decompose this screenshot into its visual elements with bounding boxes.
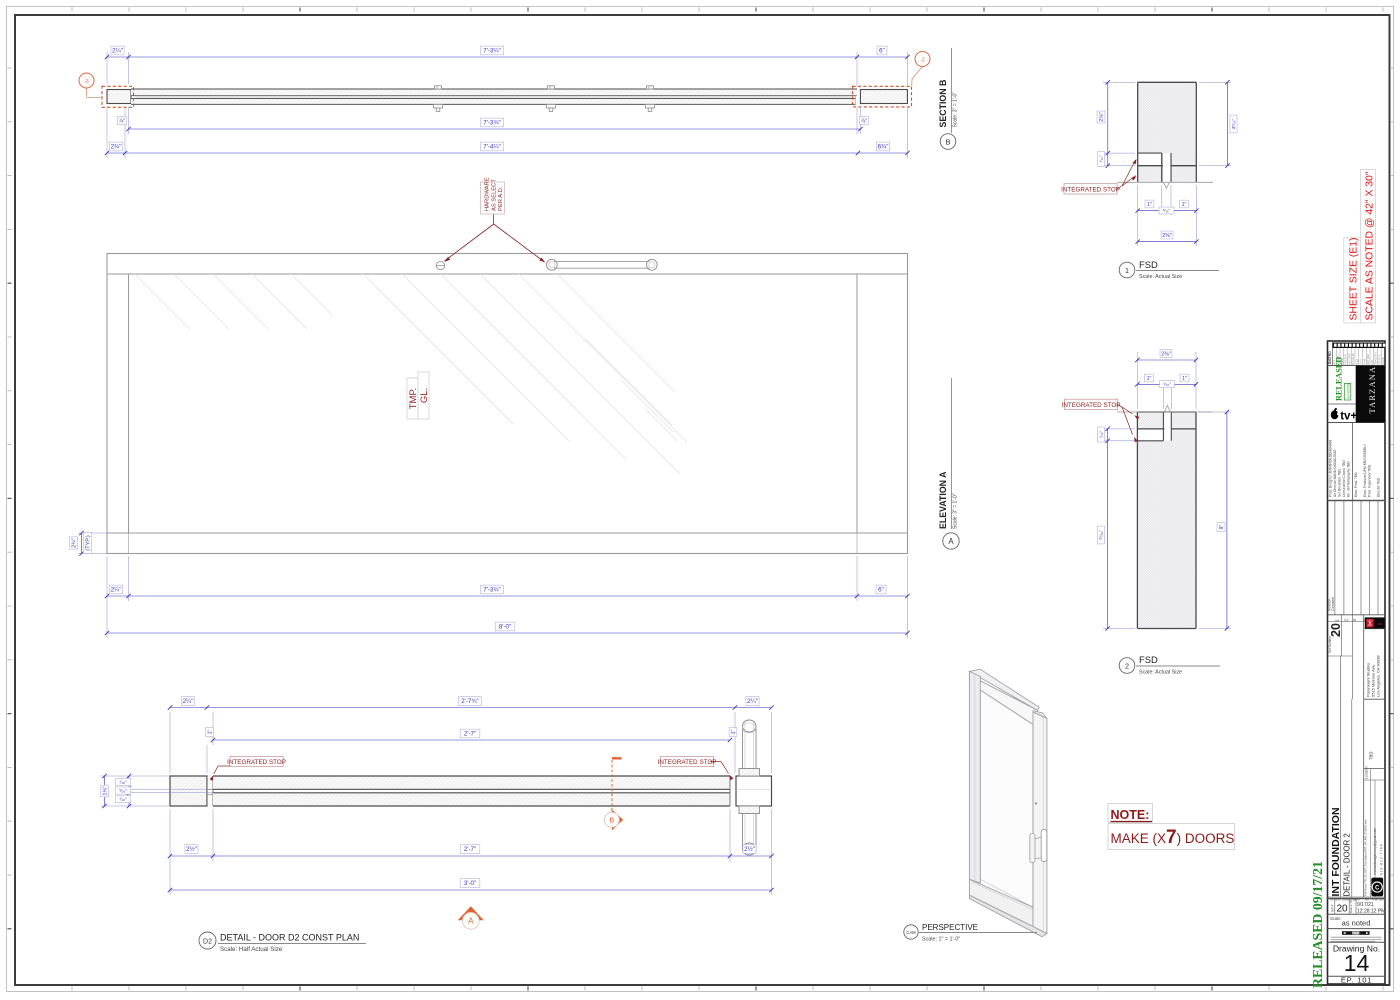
svg-text:1": 1"	[731, 729, 737, 734]
svg-text:3'-0": 3'-0"	[464, 880, 476, 887]
svg-text:⅞": ⅞"	[861, 118, 867, 124]
svg-text:SCALE AS NOTED @ 42" X 30": SCALE AS NOTED @ 42" X 30"	[1364, 171, 1375, 320]
svg-text:2'-7": 2'-7"	[464, 846, 476, 853]
svg-text:as noted: as noted	[1342, 919, 1371, 928]
svg-text:Set Decorator TBD: Set Decorator TBD	[1337, 469, 1341, 497]
svg-text:D2: D2	[203, 938, 212, 945]
svg-text:Prod. Supervisor TBD: Prod. Supervisor TBD	[1367, 464, 1371, 497]
svg-text:-3: -3	[84, 79, 89, 85]
svg-text:PERSPECTIVE: PERSPECTIVE	[922, 923, 978, 932]
svg-text:Set #: Set #	[1331, 904, 1335, 912]
svg-text:2½": 2½"	[186, 846, 197, 853]
svg-text:A: A	[948, 537, 954, 546]
svg-text:2'-7¾": 2'-7¾"	[461, 698, 478, 705]
svg-text:3⁵⁄₁₆": 3⁵⁄₁₆"	[1231, 119, 1236, 130]
svg-text:RIG GRIP: RIG GRIP	[1347, 353, 1351, 365]
svg-text:A: A	[468, 917, 474, 926]
svg-text:Date & Time: Date & Time	[1349, 897, 1353, 913]
svg-text:INT FOUNDATION: INT FOUNDATION	[1330, 807, 1342, 896]
svg-text:EP. 101: EP. 101	[1341, 975, 1372, 984]
svg-text:PROD: PROD	[1381, 357, 1385, 365]
svg-text:⅞": ⅞"	[119, 118, 125, 124]
svg-text:7'-4¼": 7'-4¼"	[483, 144, 500, 151]
svg-text:LOC: LOC	[1370, 359, 1374, 364]
svg-text:INTEGRATED STOP: INTEGRATED STOP	[1061, 187, 1120, 194]
svg-text:TMP.: TMP.	[408, 388, 419, 409]
svg-text:CAM: CAM	[1362, 359, 1366, 365]
svg-text:2⅝": 2⅝"	[1099, 112, 1105, 121]
svg-text:Construction Coord. TBD: Construction Coord. TBD	[1342, 460, 1346, 497]
svg-text:-2: -2	[920, 58, 925, 64]
svg-text:6": 6"	[878, 587, 884, 594]
svg-text:Scale: Half Actual Size: Scale: Half Actual Size	[220, 946, 283, 953]
svg-text:V-FX: V-FX	[1359, 359, 1363, 365]
svg-text:⁵⁄₁₆": ⁵⁄₁₆"	[1163, 382, 1171, 387]
svg-text:⁵⁄₁₆": ⁵⁄₁₆"	[119, 788, 127, 793]
svg-text:C: C	[1375, 885, 1380, 891]
svg-text:2¼": 2¼"	[111, 587, 122, 594]
svg-text:INTEGRATED STOP: INTEGRATED STOP	[227, 759, 286, 766]
svg-text:6¾": 6¾"	[878, 144, 889, 151]
svg-text:1": 1"	[207, 729, 213, 734]
svg-text:7'-3¼": 7'-3¼"	[483, 48, 500, 55]
svg-text:RELEASED: RELEASED	[1335, 357, 1344, 401]
svg-text:rev 9/17/21: rev 9/17/21	[1346, 383, 1350, 399]
svg-text:Exec. Prod. TBD: Exec. Prod. TBD	[1354, 472, 1358, 497]
svg-text:2¼": 2¼"	[183, 698, 194, 705]
svg-text:2⅜": 2⅜"	[1162, 233, 1171, 239]
svg-text:2¼": 2¼"	[112, 48, 123, 55]
svg-text:Scale: Actual Size: Scale: Actual Size	[1139, 670, 1182, 676]
svg-text:File Name TA_20_SET_Foundati: File Name TA_20_SET_Foundation/INT_V4_MB…	[1364, 819, 1368, 896]
svg-text:Exec. Producer/UPM KRIS EBER: Exec. Producer/UPM KRIS EBERLY	[1363, 443, 1367, 497]
svg-text:FSD: FSD	[1139, 654, 1158, 665]
svg-text:SECTION B: SECTION B	[938, 80, 948, 128]
svg-text:(TYP.): (TYP.)	[86, 535, 92, 551]
svg-text:HARDWARE: HARDWARE	[485, 177, 491, 211]
svg-text:Scale: 3" = 1'-0": Scale: 3" = 1'-0"	[953, 92, 959, 128]
svg-text:⁷⁄₁₆": ⁷⁄₁₆"	[1099, 430, 1104, 438]
svg-text:7'-3¾": 7'-3¾"	[483, 587, 500, 594]
svg-text:1": 1"	[1147, 376, 1152, 382]
svg-text:9": 9"	[1219, 524, 1225, 529]
svg-text:6": 6"	[879, 48, 885, 55]
svg-text:michaelbudgehenry@gmail.com: michaelbudgehenry@gmail.com	[1373, 828, 1377, 875]
svg-text:Prod. Designer JENNIFER DEHG: Prod. Designer JENNIFER DEHGHANI	[1328, 440, 1332, 497]
svg-text:14: 14	[1344, 950, 1370, 976]
svg-text:tv+: tv+	[1340, 410, 1357, 422]
svg-text:AS SELECT: AS SELECT	[491, 179, 497, 211]
svg-text:1": 1"	[1182, 376, 1187, 382]
svg-text:Scale: 1" = 1'-0": Scale: 1" = 1'-0"	[922, 937, 960, 943]
svg-text:STUNTS: STUNTS	[1377, 354, 1381, 365]
svg-text:Dir. of Photography TBD: Dir. of Photography TBD	[1346, 461, 1350, 497]
svg-text:2½": 2½"	[744, 846, 755, 853]
svg-text:1": 1"	[1147, 202, 1152, 208]
svg-text:S-FX: S-FX	[1355, 359, 1359, 365]
svg-text:B: B	[945, 137, 950, 146]
svg-text:Los Angeles, CA 90038: Los Angeles, CA 90038	[1375, 655, 1380, 697]
svg-text:2¾": 2¾"	[72, 538, 78, 548]
svg-text:1: 1	[1125, 266, 1129, 275]
svg-text:20: 20	[1336, 904, 1348, 915]
svg-text:⁵⁄₁₆": ⁵⁄₁₆"	[1163, 208, 1171, 213]
svg-text:CAM: CAM	[906, 930, 916, 935]
svg-text:2¾": 2¾"	[111, 144, 122, 151]
svg-text:1" ACTUAL: 1" ACTUAL	[1350, 932, 1362, 935]
svg-text:SHEET SIZE (E1): SHEET SIZE (E1)	[1349, 238, 1360, 321]
svg-text:2'-7": 2'-7"	[464, 731, 476, 738]
svg-text:8'-0": 8'-0"	[499, 624, 511, 631]
svg-text:TBD: TBD	[1369, 752, 1374, 760]
svg-text:⁷⁄₁₆": ⁷⁄₁₆"	[119, 797, 127, 802]
svg-text:PER A.D.: PER A.D.	[498, 186, 504, 211]
svg-text:1": 1"	[1182, 202, 1187, 208]
svg-text:Comment: Comment	[1331, 597, 1335, 611]
svg-text:TARZANA: TARZANA	[1368, 366, 1377, 414]
svg-text:TRANSPO: TRANSPO	[1374, 352, 1378, 365]
svg-text:8 1 8 - 6 1 2 - 7 7 6 4: 8 1 8 - 6 1 2 - 7 7 6 4	[1380, 844, 1384, 875]
svg-text:1⅛": 1⅛"	[102, 786, 108, 795]
svg-text:Location: Location	[1364, 766, 1368, 779]
svg-text:2: 2	[1125, 661, 1129, 670]
svg-text:RELEASED 09/17/21: RELEASED 09/17/21	[1310, 861, 1325, 988]
svg-text:AB9: AB9	[1377, 622, 1382, 626]
svg-text:9/17/21: 9/17/21	[1357, 902, 1374, 908]
svg-text:MAKE (X7) DOORS: MAKE (X7) DOORS	[1111, 827, 1235, 848]
svg-text:INTEGRATED STOP: INTEGRATED STOP	[1062, 402, 1121, 409]
svg-text:RIG ELEC: RIG ELEC	[1351, 353, 1355, 365]
svg-text:7⁵⁄₁₆": 7⁵⁄₁₆"	[1099, 530, 1104, 541]
svg-text:Art Director DAVID DIGIACOMO: Art Director DAVID DIGIACOMO	[1333, 449, 1337, 497]
svg-text:DISTRO: DISTRO	[1328, 351, 1332, 364]
svg-text:DETAIL - DOOR D2 CONST PLAN: DETAIL - DOOR D2 CONST PLAN	[220, 933, 359, 943]
svg-text:Scale:: Scale:	[1330, 916, 1342, 921]
svg-text:Scale: 3" = 1'-0": Scale: 3" = 1'-0"	[953, 493, 959, 529]
svg-text:20: 20	[1329, 623, 1343, 637]
svg-text:DETAIL - DOOR 2: DETAIL - DOOR 2	[1342, 833, 1351, 896]
svg-text:2¼": 2¼"	[747, 698, 758, 705]
svg-text:⁷⁄₁₆": ⁷⁄₁₆"	[1099, 155, 1104, 163]
svg-text:INTEGRATED STOP: INTEGRATED STOP	[658, 759, 717, 766]
svg-text:Scale: Actual Size: Scale: Actual Size	[1139, 274, 1182, 280]
svg-text:2⅜": 2⅜"	[1161, 351, 1170, 357]
svg-text:⁷⁄₁₆": ⁷⁄₁₆"	[119, 780, 127, 785]
svg-text:ELEVATION A: ELEVATION A	[938, 471, 948, 529]
svg-text:B: B	[609, 817, 614, 824]
svg-text:GREENS: GREENS	[1344, 354, 1348, 365]
svg-text:FSD: FSD	[1139, 259, 1158, 270]
svg-text:Director TBD: Director TBD	[1376, 477, 1380, 497]
svg-text:GL.: GL.	[419, 388, 430, 403]
svg-text:7'-3¾": 7'-3¾"	[483, 120, 500, 127]
svg-text:12:28:12 PM: 12:28:12 PM	[1357, 908, 1385, 914]
svg-text:NOTE:: NOTE:	[1111, 808, 1150, 822]
svg-text:SET DEC: SET DEC	[1366, 353, 1370, 364]
